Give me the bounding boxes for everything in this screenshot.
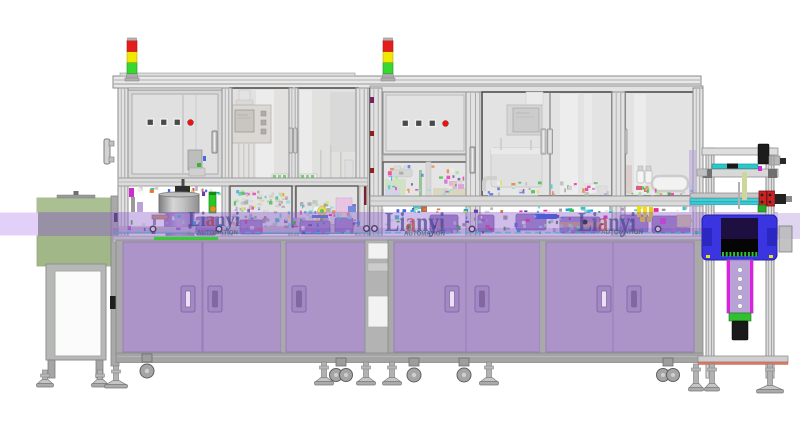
svg-text:Lianyi: Lianyi bbox=[188, 207, 240, 231]
svg-text:AUTOMATION: AUTOMATION bbox=[601, 229, 644, 236]
svg-text:AUTOMATION: AUTOMATION bbox=[197, 230, 239, 237]
svg-text:AUTOMATION: AUTOMATION bbox=[404, 231, 446, 238]
